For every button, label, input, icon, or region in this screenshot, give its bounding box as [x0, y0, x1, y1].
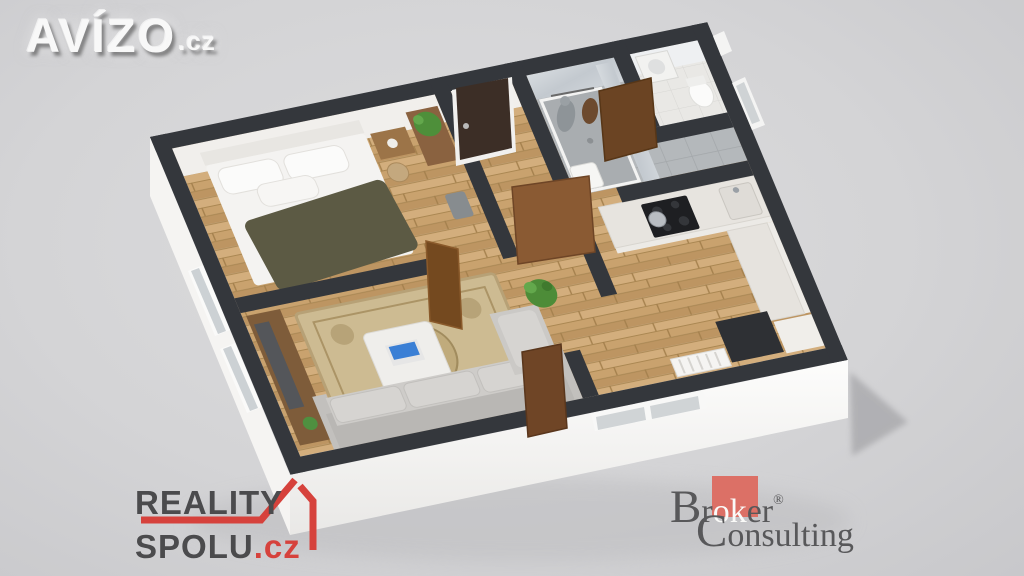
broker-consulting-logo: Broker® Consulting [668, 470, 948, 560]
reality-logo-line1: REALITY [135, 486, 301, 519]
jacket-hood [560, 96, 570, 106]
avizo-logo-text: AVÍZO [26, 9, 176, 62]
hallway-door [599, 78, 657, 161]
corner-shadow [850, 372, 908, 456]
bathroom-door [512, 176, 595, 264]
broker-logo-line2: Consulting [696, 504, 854, 558]
door-handle [463, 123, 469, 129]
reality-spolu-logo: REALITY SPOLU.cz [135, 486, 301, 563]
avizo-logo-tld: .cz [178, 26, 216, 56]
screenshot-stage: AVÍZO.cz REALITY SPOLU.cz Broker® Consul… [0, 0, 1024, 576]
living-room-door [522, 344, 567, 437]
reality-logo-tld: .cz [254, 528, 301, 565]
entry-door [456, 78, 512, 160]
avizo-logo: AVÍZO.cz [26, 8, 214, 63]
bedroom-door [426, 241, 462, 329]
reality-logo-line2: SPOLU.cz [135, 530, 301, 563]
